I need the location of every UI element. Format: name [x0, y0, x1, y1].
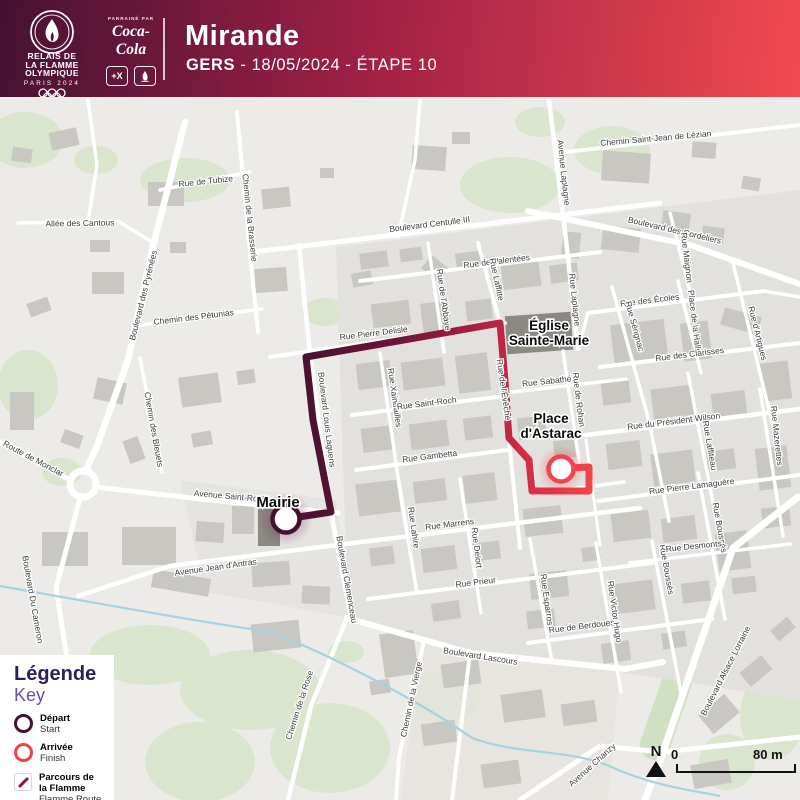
- map: Chemin Saint-Jean de LézianRue de Tubize…: [0, 97, 800, 800]
- header-divider: [163, 18, 165, 80]
- poi-label: Mairie: [256, 494, 299, 511]
- logo-paris-2024: PARIS 2024: [14, 80, 90, 87]
- poster: RELAIS DE LA FLAMME OLYMPIQUE PARIS 2024…: [0, 0, 800, 800]
- legend-item-depart: DépartStart: [14, 713, 108, 735]
- finish-marker: [549, 457, 574, 482]
- sponsor-label: PARRAINÉ PAR: [100, 16, 162, 21]
- scale-zero-label: 0: [671, 747, 678, 762]
- route-line-icon: [14, 773, 32, 791]
- compass-n-label: N: [640, 743, 672, 760]
- north-arrow-icon: [646, 761, 666, 777]
- sponsor-block: PARRAINÉ PAR Coca-Cola +X: [100, 16, 162, 86]
- flame-icon: [28, 8, 76, 56]
- department-label: GERS: [186, 56, 235, 74]
- finish-circle-icon: [14, 743, 33, 762]
- start-circle-icon: [14, 714, 33, 733]
- scale-distance-label: 80 m: [753, 747, 783, 762]
- page-title: Mirande: [185, 20, 300, 53]
- legend-key: Key: [14, 686, 108, 706]
- city-map-canvas: Chemin Saint-Jean de LézianRue de Tubize…: [0, 97, 800, 800]
- scale-bar: [676, 764, 796, 773]
- stage-subtitle: GERS - 18/05/2024 - ÉTAPE 10: [186, 56, 437, 75]
- legend-item-arrivee: ArrivéeFinish: [14, 742, 108, 764]
- compass-north: N: [640, 743, 672, 777]
- legend-title: Légende: [14, 664, 108, 684]
- street-label: Allée des Cantous: [45, 217, 114, 228]
- coca-cola-logo: Coca-Cola: [100, 23, 162, 59]
- plus-x-badge: +X: [106, 66, 128, 86]
- relais-flamme-logo: RELAIS DE LA FLAMME OLYMPIQUE PARIS 2024: [14, 4, 90, 96]
- paris-2024-badge-icon: [134, 66, 156, 86]
- legend-panel: Légende Key DépartStart ArrivéeFinish Pa…: [0, 655, 114, 800]
- legend-item-parcours: Parcours de la FlammeFlamme Route: [14, 772, 108, 800]
- header-banner: RELAIS DE LA FLAMME OLYMPIQUE PARIS 2024…: [0, 0, 800, 97]
